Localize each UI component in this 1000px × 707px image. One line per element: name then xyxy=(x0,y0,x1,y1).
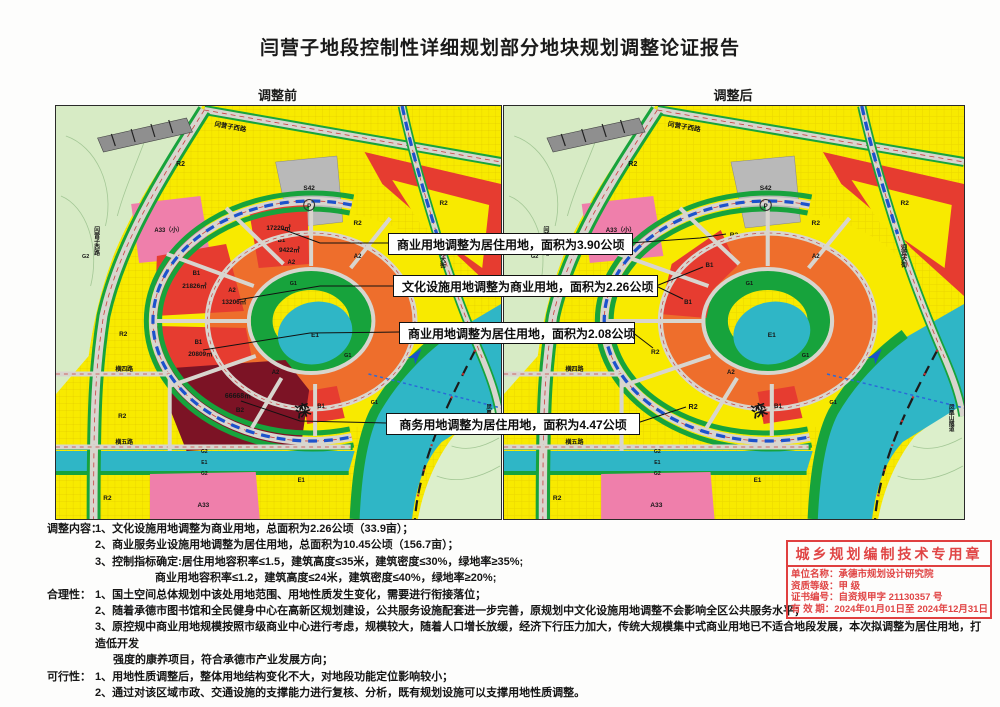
note-text: 2、商业服务业设施用地调整为居住用地，总面积为10.45公顷（156.7亩）； xyxy=(95,539,459,551)
parcel-code-label: B1 xyxy=(195,340,203,346)
note-line: 2、通过对该区域市政、交通设施的支撑能力进行复核、分析，既有规划设施可以支撑用地… xyxy=(0,685,985,701)
stamp-title: 城乡规划编制技术专用章 xyxy=(788,542,990,567)
note-text: 1、文化设施用地调整为商业用地，总面积为2.26公顷（33.9亩）； xyxy=(95,523,413,535)
map-before-caption: 调整前 xyxy=(55,85,500,104)
stamp-row: 单位名称：承德市规划设计研究院 xyxy=(788,569,990,581)
map-after-caption: 调整后 xyxy=(503,85,963,104)
stamp-body: 单位名称：承德市规划设计研究院 资质等级：甲 级 证书编号：自资规甲字 2113… xyxy=(788,567,990,617)
parcel-code-label: B1 xyxy=(684,300,692,306)
callout-commercial-to-residential-208: 商业用地调整为居住用地，面积为2.08公顷 xyxy=(399,322,635,344)
map-before: 17220㎡ B1 9422㎡ A2 B1 21826㎡ A2 13206㎡ B… xyxy=(55,105,502,520)
parcel-area-label: 9422㎡ xyxy=(279,245,300,254)
note-text: 2、随着承德市图书馆和全民健身中心在高新区规划建设，公共服务设施配套进一步完善，… xyxy=(95,605,805,617)
note-text: 2、通过对该区域市政、交通设施的支撑能力进行复核、分析，既有规划设施可以支撑用地… xyxy=(95,687,585,699)
stamp-row: 有 效 期：2024年01月01日至 2024年12月31日 xyxy=(788,604,990,616)
stamp-row-label: 证书编号： xyxy=(791,592,839,603)
stamp-row-label: 单位名称： xyxy=(791,569,839,580)
stamp-row-value: 甲 级 xyxy=(839,581,861,592)
callout-commercial-to-residential-390: 商业用地调整为居住用地，面积为3.90公顷 xyxy=(388,233,633,255)
note-line: 3、原控规中商业用地规模按照市级商业中心进行考虑，规模较大，随着人口增长放缓，经… xyxy=(0,619,985,652)
parcel-area-label: 13206㎡ xyxy=(222,297,247,306)
stamp-row-value: 2024年01月01日至 2024年12月31日 xyxy=(834,604,988,615)
note-text: 商业用地容积率≤1.2，建筑高度≤24米，建筑密度≤40%，绿地率≥20%; xyxy=(155,572,496,584)
map-after: R2 R2 R2 R2 B1 B1 xyxy=(503,105,965,520)
note-line: 调整内容：1、文化设施用地调整为商业用地，总面积为2.26公顷（33.9亩）； xyxy=(0,521,985,537)
parcel-code-label: R2 xyxy=(689,404,698,411)
note-text: 1、用地性质调整后，整体用地结构变化不大，对地段功能定位影响较小； xyxy=(95,671,453,683)
parcel-code-label: B1 xyxy=(706,263,714,269)
note-section-label: 可行性： xyxy=(47,669,91,685)
parcel-code-label: R2 xyxy=(651,349,660,356)
callout-cultural-to-commercial-226: 文化设施用地调整为商业用地，面积为2.26公顷 xyxy=(393,275,658,297)
note-section-label: 合理性： xyxy=(47,587,91,603)
page-title: 闫营子地段控制性详细规划部分地块规划调整论证报告 xyxy=(0,33,1000,60)
parcel-code-label: B2 xyxy=(236,407,245,414)
parcel-code-label: B1 xyxy=(193,271,201,277)
parcel-area-label: 20809㎡ xyxy=(188,349,213,358)
stamp-row-label: 资质等级： xyxy=(791,581,839,592)
parcel-code-label: A2 xyxy=(288,260,296,266)
parcel-code-label: A2 xyxy=(228,288,236,294)
stamp-row-value: 承德市规划设计研究院 xyxy=(839,569,934,580)
callout-business-to-residential-447: 商务用地调整为居住用地，面积为4.47公顷 xyxy=(386,413,640,435)
stamp-row-value: 自资规甲字 21130357 号 xyxy=(839,592,943,603)
official-stamp: 城乡规划编制技术专用章 单位名称：承德市规划设计研究院 资质等级：甲 级 证书编… xyxy=(786,540,992,619)
note-text: 1、国土空间总体规划中该处用地范围、用地性质发生变化，需要进行衔接落位； xyxy=(95,589,486,601)
note-text: 强度的康养项目，符合承德市产业发展方向； xyxy=(113,654,333,666)
stamp-row: 资质等级：甲 级 xyxy=(788,581,990,593)
note-line: 可行性：1、用地性质调整后，整体用地结构变化不大，对地段功能定位影响较小； xyxy=(0,669,985,685)
parcel-area-label: 21826㎡ xyxy=(182,281,207,290)
note-line: 强度的康养项目，符合承德市产业发展方向； xyxy=(0,652,985,668)
parcel-area-label: 17220㎡ xyxy=(266,223,291,232)
note-section-label: 调整内容： xyxy=(47,521,102,537)
stamp-row-label: 有 效 期： xyxy=(791,604,834,615)
stamp-row: 证书编号：自资规甲字 21130357 号 xyxy=(788,592,990,604)
note-text: 3、控制指标确定:居住用地容积率≤1.5，建筑高度≤35米，建筑密度≤30%，绿… xyxy=(95,556,523,568)
note-text: 3、原控规中商业用地规模按照市级商业中心进行考虑，规模较大，随着人口增长放缓，经… xyxy=(95,621,981,649)
